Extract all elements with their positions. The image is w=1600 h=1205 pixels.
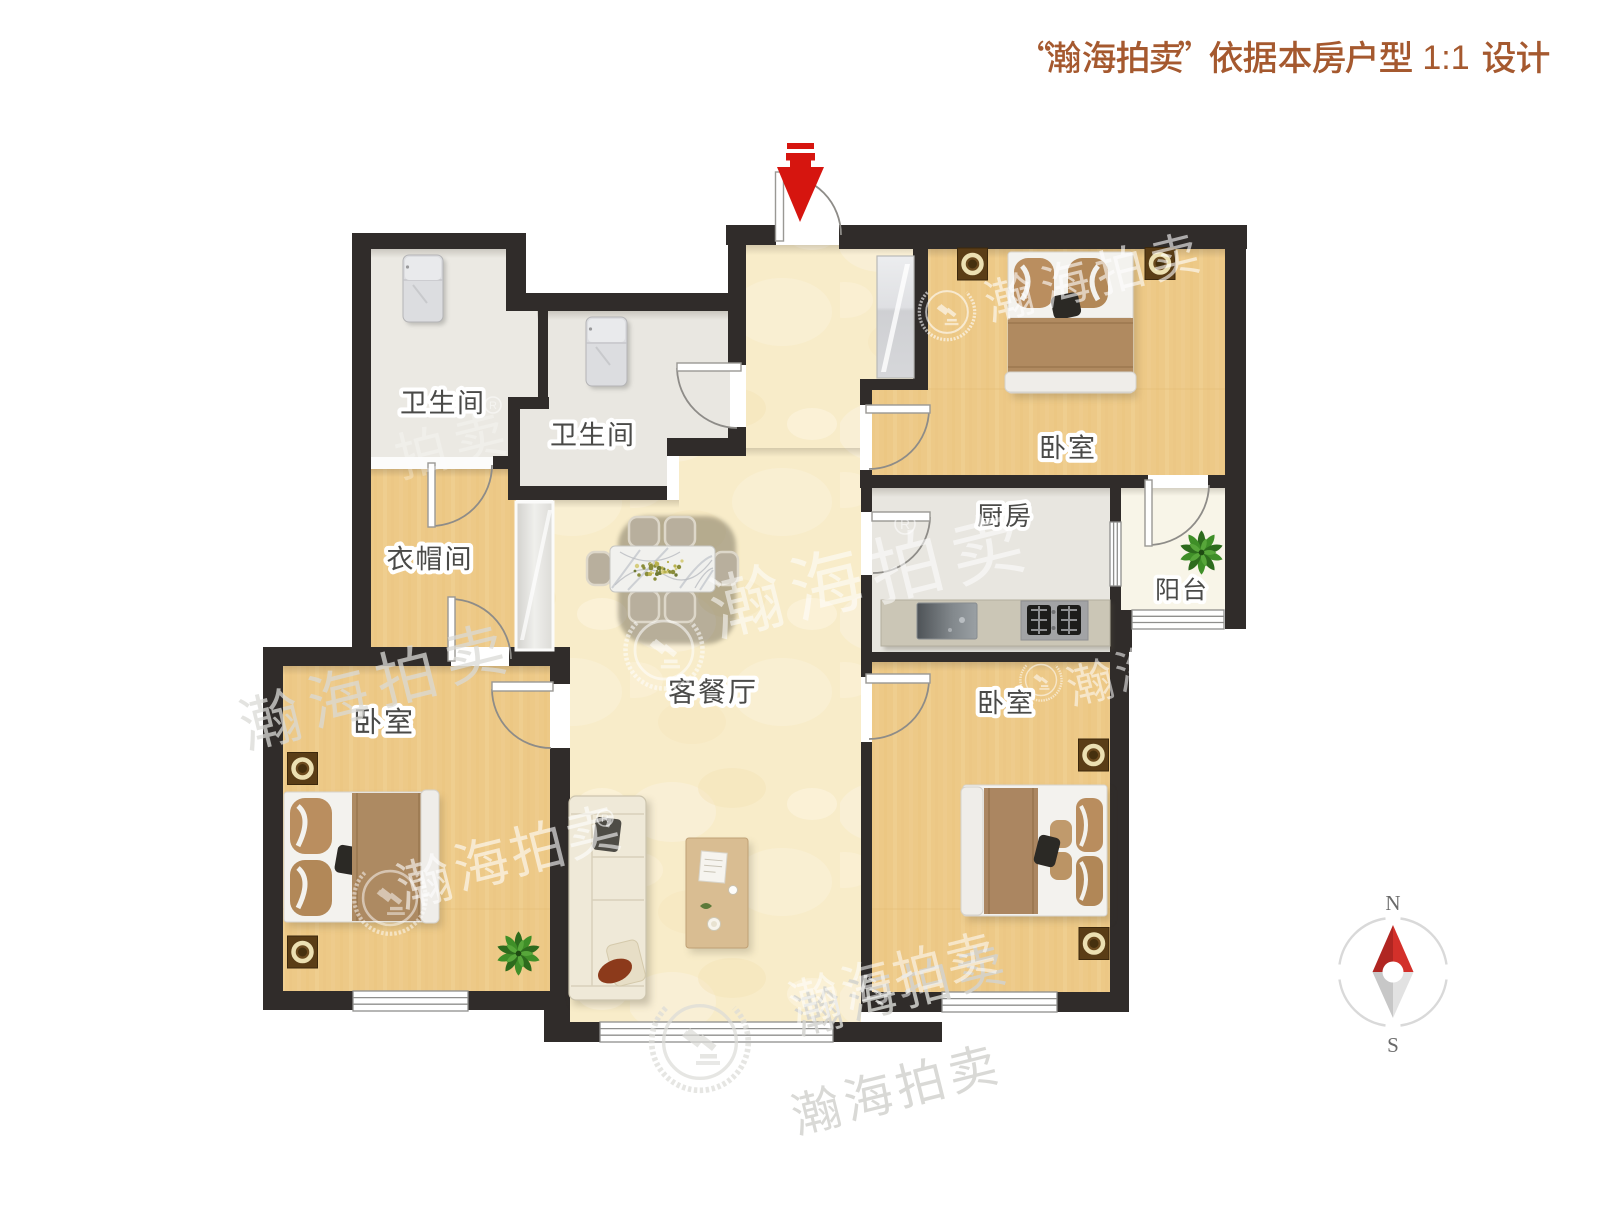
svg-text:R: R [900, 516, 910, 532]
svg-text:N: N [1385, 891, 1400, 915]
svg-text:S: S [1387, 1033, 1399, 1057]
svg-text:R: R [489, 400, 497, 412]
svg-text:1:1: 1:1 [1422, 39, 1469, 77]
svg-text:R: R [601, 813, 609, 825]
